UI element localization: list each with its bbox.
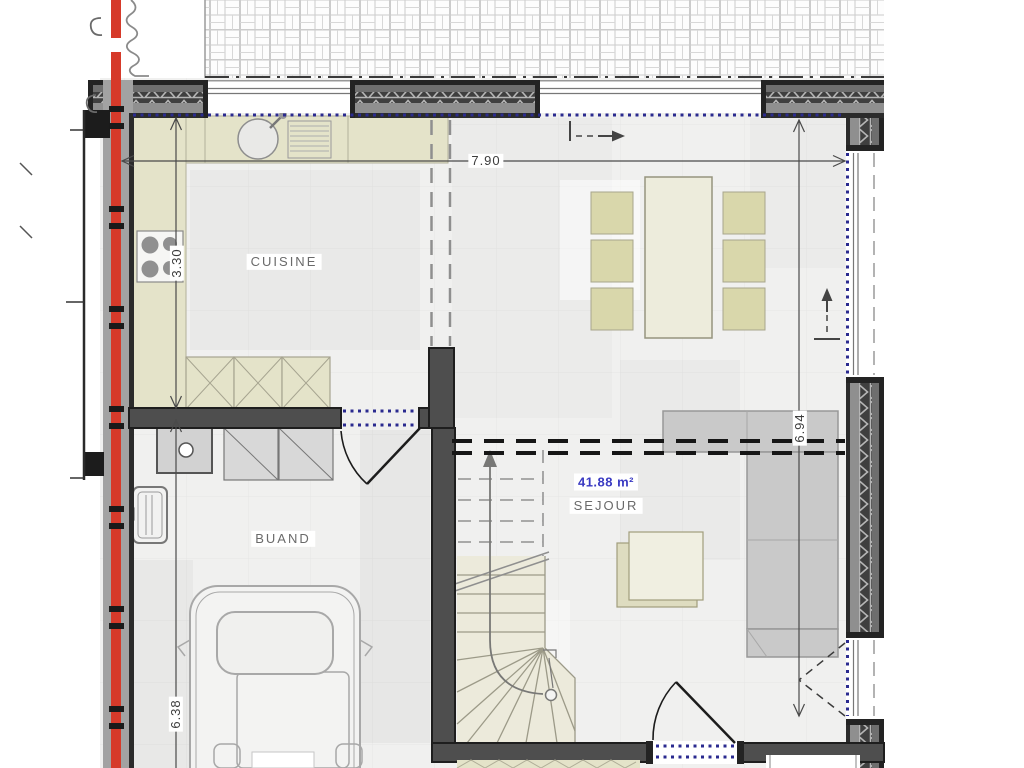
window-top-left [203, 80, 355, 118]
dining-table [645, 177, 712, 338]
kitchen-label: CUISINE [247, 254, 322, 270]
dimension-kitchen-depth: 3.30 [170, 245, 184, 280]
dimension-width: 7.90 [468, 154, 503, 168]
lower-room-opening [766, 755, 860, 768]
dimension-living-depth: 6.94 [793, 410, 807, 445]
laundry-cabinets [224, 428, 333, 480]
floor-plan: CUISINE BUAND 41.88 m² SEJOUR 7.90 3.30 … [0, 0, 1024, 768]
kitchen-base-cabinets [186, 357, 330, 409]
window-top-right [535, 80, 766, 118]
living-area-value: 41.88 m² [574, 474, 638, 491]
terrace-paving [205, 0, 884, 78]
car-license-plate [252, 752, 314, 768]
laundry-sink [157, 428, 212, 473]
window-right-large [846, 145, 884, 383]
floor-plan-drawing [0, 0, 1024, 768]
dimension-garage-depth: 6.38 [169, 696, 183, 731]
laundry-label: BUAND [251, 531, 315, 547]
car [178, 586, 372, 768]
coffee-table [617, 532, 703, 607]
living-label: SEJOUR [570, 498, 643, 514]
